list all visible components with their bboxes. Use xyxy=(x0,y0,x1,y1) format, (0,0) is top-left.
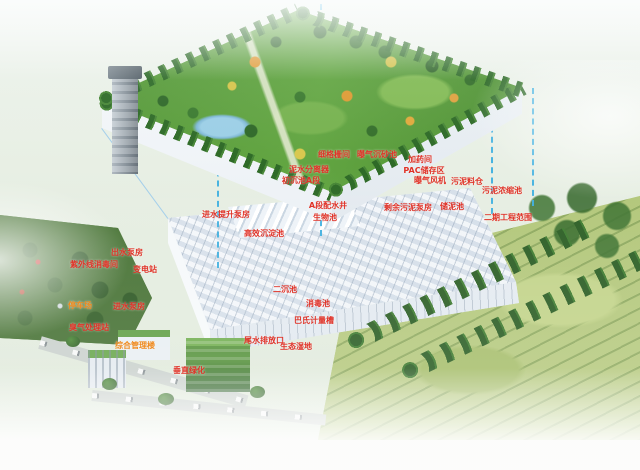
facility-label: 曝气风机 xyxy=(414,177,446,185)
facility-label: 二期工程范围 xyxy=(484,214,532,222)
facility-label: 加药间 xyxy=(408,156,432,164)
facility-label: 停车场 xyxy=(68,302,92,310)
facility-label: 高效沉淀池 xyxy=(244,230,284,238)
facility-label: 进水泵房 xyxy=(113,303,145,311)
facility-label: 垂直绿化 xyxy=(173,367,205,375)
facility-label: A段配水井 xyxy=(309,202,347,210)
facility-label: 曝气沉砂池 xyxy=(357,151,397,159)
facility-label: 出水泵房 xyxy=(111,249,143,257)
facility-label: 消毒池 xyxy=(306,300,330,308)
rendering-canvas: 细格栅间曝气沉砂池加药间PAC储存区曝气风机泥水分离器初沉池A段进水提升泵房A段… xyxy=(0,0,640,470)
facility-label: 污泥浓缩池 xyxy=(482,187,522,195)
facility-label: 变电站 xyxy=(133,266,157,274)
facility-label: 剩余污泥泵房 xyxy=(384,204,432,212)
facility-label: 二沉池 xyxy=(273,286,297,294)
facility-label: 紫外线消毒间 xyxy=(70,261,118,269)
facility-label: PAC储存区 xyxy=(403,167,444,175)
labels-layer: 细格栅间曝气沉砂池加药间PAC储存区曝气风机泥水分离器初沉池A段进水提升泵房A段… xyxy=(0,0,640,470)
facility-label: 生物池 xyxy=(313,214,337,222)
facility-label: 进水提升泵房 xyxy=(202,211,250,219)
facility-label: 细格栅间 xyxy=(318,151,350,159)
facility-label: 臭气处理站 xyxy=(69,324,109,332)
facility-label: 综合管理楼 xyxy=(115,342,155,350)
facility-label: 初沉池A段 xyxy=(282,177,320,185)
facility-label: 巴氏计量槽 xyxy=(294,317,334,325)
facility-label: 尾水排放口 xyxy=(244,337,284,345)
facility-label: 储泥池 xyxy=(440,203,464,211)
facility-label: 污泥料仓 xyxy=(451,178,483,186)
facility-label: 泥水分离器 xyxy=(289,166,329,174)
facility-label: 生态湿地 xyxy=(280,343,312,351)
